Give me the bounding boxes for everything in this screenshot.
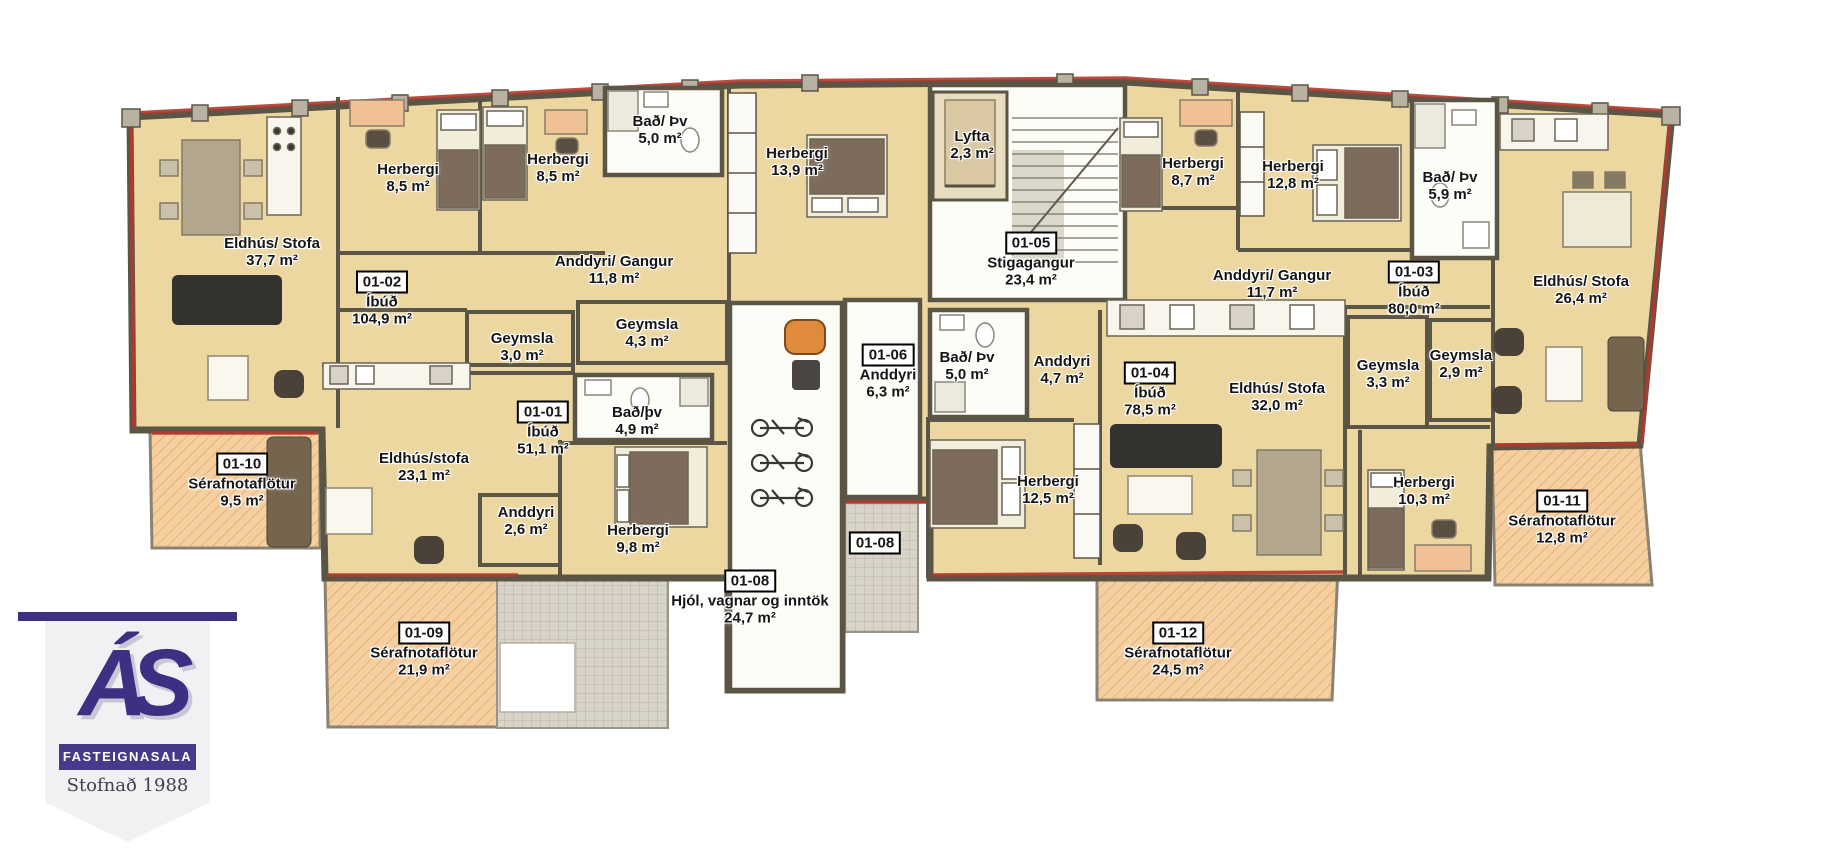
unit-label-01-03: 01-03Íbúð80,0 m² xyxy=(1388,261,1440,318)
room-label: Geymsla3,3 m² xyxy=(1357,357,1420,391)
bike-storage-room xyxy=(730,303,842,690)
room-label: Eldhús/ Stofa32,0 m² xyxy=(1229,380,1325,414)
room-label: Eldhús/stofa23,1 m² xyxy=(379,450,469,484)
room-label: Herbergi10,3 m² xyxy=(1393,474,1455,508)
room-label: Bað/ Þv5,0 m² xyxy=(632,113,687,147)
floorplan-drawing xyxy=(0,0,1824,867)
unit-label-01-01: 01-01Íbúð51,1 m² xyxy=(517,401,569,458)
room-label: Geymsla2,9 m² xyxy=(1430,347,1493,381)
room-label: Lyfta2,3 m² xyxy=(950,128,993,162)
room-label: Geymsla3,0 m² xyxy=(491,330,554,364)
room-label: Herbergi9,8 m² xyxy=(607,522,669,556)
room-label: Bað/þv4,9 m² xyxy=(612,404,662,438)
unit-label-01-08b: 01-08 xyxy=(849,532,901,555)
unit-label-01-06: 01-06Anddyri6,3 m² xyxy=(860,344,917,401)
room-label: Anddyri/ Gangur11,7 m² xyxy=(1213,267,1331,301)
room-label: Herbergi12,5 m² xyxy=(1017,473,1079,507)
room-label: Herbergi12,8 m² xyxy=(1262,158,1324,192)
room-label: Geymsla4,3 m² xyxy=(616,316,679,350)
floorplan-page: Eldhús/ Stofa37,7 m² Herbergi8,5 m² Herb… xyxy=(0,0,1824,867)
logo-company-name: FASTEIGNASALA xyxy=(59,744,196,770)
room-label: Herbergi8,5 m² xyxy=(377,161,439,195)
room-label: Herbergi8,5 m² xyxy=(527,151,589,185)
unit-label-01-09: 01-09Sérafnotaflötur21,9 m² xyxy=(370,622,478,679)
unit-label-01-05: 01-05Stigagangur23,4 m² xyxy=(987,232,1075,289)
room-label: Anddyri2,6 m² xyxy=(498,504,555,538)
room-label: Anddyri4,7 m² xyxy=(1034,353,1091,387)
unit-label-01-10: 01-10Sérafnotaflötur9,5 m² xyxy=(188,453,296,510)
room-label: Eldhús/ Stofa37,7 m² xyxy=(224,235,320,269)
room-label: Bað/ Þv5,9 m² xyxy=(1422,169,1477,203)
unit-label-01-11: 01-11Sérafnotaflötur12,8 m² xyxy=(1508,490,1616,547)
unit-label-01-04: 01-04Íbúð78,5 m² xyxy=(1124,362,1176,419)
logo-tagline: Stofnað 1988 xyxy=(45,775,210,796)
room-label: Herbergi8,7 m² xyxy=(1162,155,1224,189)
agency-logo: ÁS FASTEIGNASALA Stofnað 1988 xyxy=(45,621,210,842)
room-label: Anddyri/ Gangur11,8 m² xyxy=(555,253,673,287)
unit-label-01-02: 01-02Íbúð104,9 m² xyxy=(352,271,412,328)
unit-label-01-08: 01-08Hjól, vagnar og inntök24,7 m² xyxy=(671,570,829,627)
room-label: Eldhús/ Stofa26,4 m² xyxy=(1533,273,1629,307)
unit-label-01-12: 01-12Sérafnotaflötur24,5 m² xyxy=(1124,622,1232,679)
logo-monogram: ÁS xyxy=(45,629,210,738)
room-label: Bað/ Þv5,0 m² xyxy=(939,349,994,383)
logo-top-bar xyxy=(18,612,237,621)
room-label: Herbergi13,9 m² xyxy=(766,145,828,179)
